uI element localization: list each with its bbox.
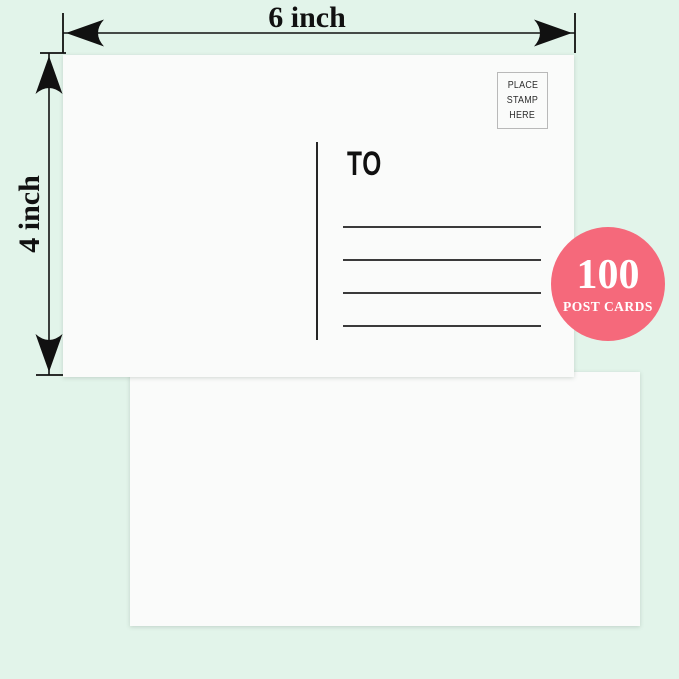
- width-dimension-label: 6 inch: [227, 1, 387, 35]
- badge-label: POST CARDS: [563, 299, 653, 315]
- dimension-arrows: [0, 0, 679, 679]
- height-dimension-label: 4 inch: [10, 134, 50, 294]
- count-badge: 100 POST CARDS: [551, 227, 665, 341]
- badge-count: 100: [577, 254, 640, 296]
